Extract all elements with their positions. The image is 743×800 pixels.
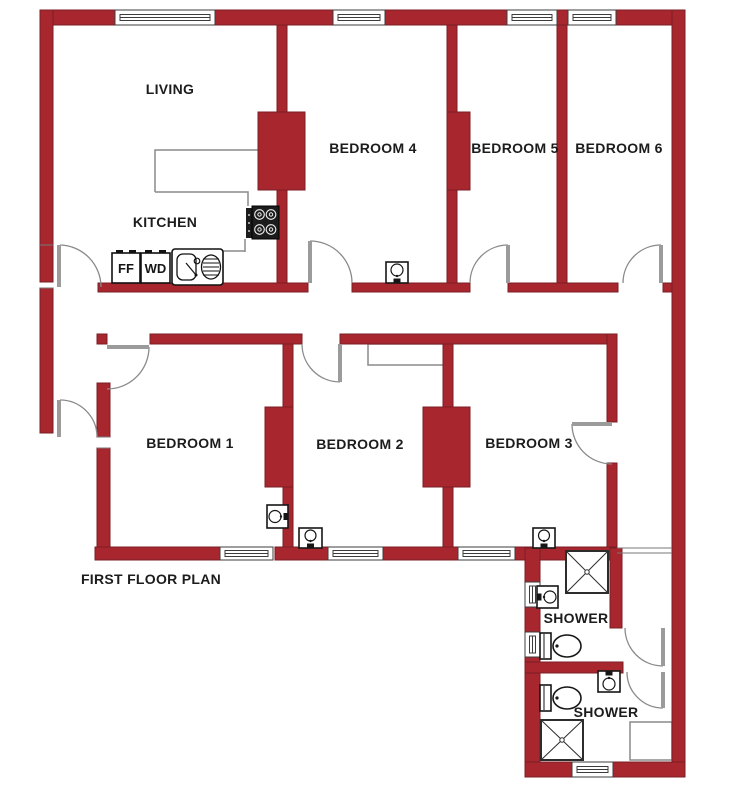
basin-tap xyxy=(606,671,613,676)
wall xyxy=(610,548,622,628)
basin-tap xyxy=(284,513,289,520)
wall xyxy=(607,463,617,547)
bedroom4-door-arc xyxy=(310,241,352,283)
bedroom6-door-arc xyxy=(623,245,661,283)
wall xyxy=(557,25,567,283)
basin-plug xyxy=(309,540,311,542)
wall xyxy=(525,657,540,777)
wall xyxy=(607,334,617,422)
basin-tap xyxy=(541,544,548,549)
wall xyxy=(557,10,568,25)
basin-plug xyxy=(543,540,545,542)
stove-knob xyxy=(248,222,250,224)
wall xyxy=(423,407,470,487)
bedroom3-door-arc xyxy=(572,424,612,464)
appliance-label: WD xyxy=(145,261,167,276)
tray-drain xyxy=(585,570,589,574)
wall xyxy=(525,548,540,582)
bedroom1-door-arc xyxy=(107,347,149,389)
wall xyxy=(613,762,685,777)
wall xyxy=(383,547,458,560)
kitchen-counter-line xyxy=(155,192,248,206)
toilet-flush xyxy=(555,696,558,699)
shower1-door-arc xyxy=(625,628,663,666)
wall xyxy=(508,283,618,292)
appliance-label: FF xyxy=(118,261,134,276)
tray-drain xyxy=(560,738,564,742)
bedroom5-door-arc xyxy=(470,245,508,283)
basin-plug xyxy=(396,275,398,277)
appliance-foot xyxy=(145,250,152,253)
basin-plug xyxy=(608,677,610,679)
wall xyxy=(340,334,615,344)
bedroom2-door-arc xyxy=(302,344,340,382)
shower2-unit xyxy=(630,722,672,760)
wall xyxy=(265,407,293,487)
shower2-door-arc xyxy=(627,672,663,708)
appliance-foot xyxy=(129,250,136,253)
wall xyxy=(672,10,685,763)
wall xyxy=(97,448,110,558)
appliance-foot xyxy=(159,250,166,253)
basin-plug xyxy=(280,515,282,517)
wall xyxy=(447,112,470,190)
floor-plan-drawing: FFWD xyxy=(0,0,743,800)
wall xyxy=(525,762,572,777)
wall xyxy=(215,10,333,25)
wall xyxy=(150,334,302,344)
wall xyxy=(97,383,110,437)
wall xyxy=(525,607,540,632)
shower1-toilet-cistern xyxy=(540,633,551,659)
wall xyxy=(258,112,305,190)
basin-tap xyxy=(537,594,542,601)
entrance-door-arc xyxy=(60,400,97,437)
basin-plug xyxy=(543,596,545,598)
basin-tap xyxy=(307,544,314,549)
stove-knob xyxy=(248,214,250,216)
wall xyxy=(663,283,672,292)
toilet-flush xyxy=(555,644,558,647)
wall xyxy=(275,547,328,560)
wall xyxy=(40,10,53,282)
appliance-foot xyxy=(116,250,123,253)
wall xyxy=(40,288,53,433)
wall xyxy=(97,334,107,344)
sink-drain xyxy=(195,274,198,277)
shower2-toilet-cistern xyxy=(540,685,551,711)
wall xyxy=(95,547,220,560)
sink-bowl xyxy=(177,254,196,280)
wall xyxy=(385,10,507,25)
floor-plan: FFWD LIVINGKITCHENBEDROOM 4BEDROOM 5BEDR… xyxy=(0,0,743,800)
basin-tap xyxy=(394,279,401,284)
kitchen-door-arc xyxy=(60,245,101,287)
wall xyxy=(352,283,470,292)
stove-knob xyxy=(248,230,250,232)
kitchen-counter-line xyxy=(155,150,258,192)
bedroom2-closet xyxy=(368,344,447,365)
